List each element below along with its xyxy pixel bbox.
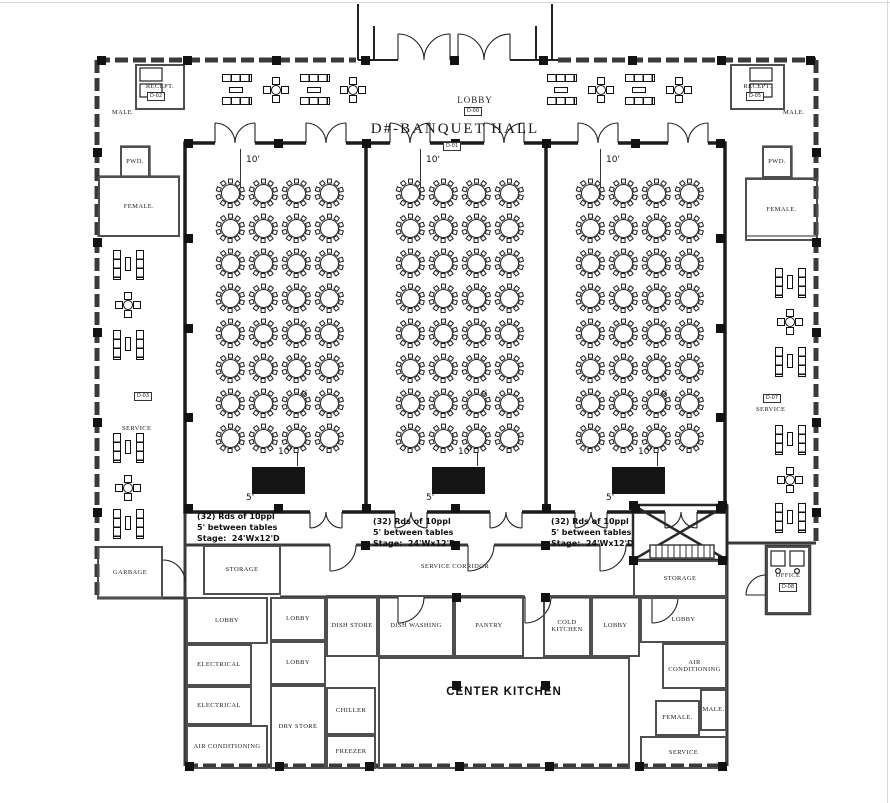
chair (518, 334, 524, 340)
chair (429, 186, 435, 192)
chair (267, 409, 273, 415)
structural-column (275, 762, 284, 771)
chair (485, 264, 491, 270)
chair (272, 186, 278, 192)
chair (513, 269, 519, 275)
chair (609, 369, 615, 375)
structural-column (716, 139, 725, 148)
lounge-sofa-set (112, 248, 144, 282)
room-label: LOBBY (671, 616, 695, 624)
room-electrical: ELECTRICAL (186, 686, 252, 725)
chair (429, 396, 435, 402)
chair (414, 444, 420, 450)
chair (621, 273, 626, 278)
chair (495, 439, 501, 445)
chair (599, 361, 605, 367)
chair (462, 299, 468, 305)
chair (675, 404, 681, 410)
chair (642, 299, 648, 305)
chair (599, 256, 605, 262)
chair (419, 439, 425, 445)
chair (675, 256, 681, 262)
chair (333, 199, 339, 205)
chair (576, 221, 582, 227)
chair (485, 431, 491, 437)
chair (294, 424, 299, 429)
lounge-sofa-set (623, 74, 657, 106)
chair (239, 439, 245, 445)
chair (632, 431, 638, 437)
chair (249, 431, 255, 437)
chair (576, 334, 582, 340)
chair (429, 194, 435, 200)
chair (305, 361, 311, 367)
chair (474, 249, 479, 254)
chair (665, 256, 671, 262)
chair (228, 214, 233, 219)
chair (408, 319, 413, 324)
round-table (395, 213, 425, 243)
round-table (314, 178, 344, 208)
chair (228, 343, 233, 348)
chair (249, 404, 255, 410)
room-lobby: LOBBY (270, 641, 326, 685)
chair (228, 319, 233, 324)
chair (480, 339, 486, 345)
chair (305, 256, 311, 262)
chair (272, 396, 278, 402)
chair (305, 186, 311, 192)
chair (396, 431, 402, 437)
chair (513, 374, 519, 380)
chair (518, 396, 524, 402)
chair (396, 229, 402, 235)
chair (228, 249, 233, 254)
chair (621, 343, 626, 348)
coffee-table (126, 257, 132, 271)
chair (452, 221, 458, 227)
chair (216, 256, 222, 262)
chair (675, 77, 683, 85)
chair (474, 389, 479, 394)
chair (693, 269, 699, 275)
round-table (248, 248, 278, 278)
structural-column (272, 56, 281, 65)
round-table (674, 423, 704, 453)
lounge-table-four-chairs (666, 77, 692, 103)
chair (338, 369, 344, 375)
chair (684, 86, 692, 94)
chair (474, 179, 479, 184)
round-table (641, 178, 671, 208)
chair (429, 256, 435, 262)
chair (474, 319, 479, 324)
chair (234, 339, 240, 345)
room-label: MALE. (783, 109, 805, 117)
dimension-label: 10' (638, 447, 652, 457)
round-table (314, 283, 344, 313)
chair (249, 194, 255, 200)
chair (216, 299, 222, 305)
chair (300, 339, 306, 345)
chair (518, 221, 524, 227)
chair (216, 186, 222, 192)
chair (333, 374, 339, 380)
chair (687, 179, 692, 184)
chair (414, 374, 420, 380)
chair (621, 354, 626, 359)
chair (441, 179, 446, 184)
structural-column (628, 56, 637, 65)
round-table (281, 353, 311, 383)
chair (518, 264, 524, 270)
chair (396, 221, 402, 227)
chair (408, 448, 413, 453)
chair (282, 264, 288, 270)
round-table (248, 318, 278, 348)
chair (327, 238, 332, 243)
chair (419, 334, 425, 340)
chair (327, 203, 332, 208)
lounge-sofa-set (774, 501, 806, 535)
room-center-kitchen: CENTER KITCHEN (378, 657, 630, 769)
chair (485, 361, 491, 367)
dimension-label: 10' (246, 155, 260, 165)
chair (249, 221, 255, 227)
chair (452, 431, 458, 437)
structural-column (452, 593, 461, 602)
sofa (113, 250, 121, 280)
chair (507, 308, 512, 313)
chair (698, 361, 704, 367)
chair (462, 256, 468, 262)
chair (462, 396, 468, 402)
chair (627, 339, 633, 345)
chair (627, 269, 633, 275)
chair (642, 264, 648, 270)
chair (419, 221, 425, 227)
chair (452, 439, 458, 445)
chair (249, 361, 255, 367)
round-table (395, 423, 425, 453)
chair (609, 256, 615, 262)
chair (267, 199, 273, 205)
chair (305, 194, 311, 200)
room-male-: MALE. (100, 106, 146, 119)
chair (239, 396, 245, 402)
chair (419, 404, 425, 410)
chair (597, 77, 605, 85)
chair (474, 203, 479, 208)
chair (414, 234, 420, 240)
chair (795, 318, 803, 326)
round-table (281, 178, 311, 208)
chair (305, 299, 311, 305)
chair (698, 256, 704, 262)
round-table (395, 178, 425, 208)
chair (239, 431, 245, 437)
round-table (281, 318, 311, 348)
structural-column (361, 56, 370, 65)
round-table (575, 388, 605, 418)
round-table (461, 178, 491, 208)
round-table (281, 283, 311, 313)
chair (327, 249, 332, 254)
chair (632, 439, 638, 445)
chair (462, 221, 468, 227)
chair (698, 264, 704, 270)
chair (396, 186, 402, 192)
chair (300, 304, 306, 310)
chair (665, 194, 671, 200)
room-service-corridor: SERVICE CORRIDOR (388, 560, 522, 574)
chair (228, 308, 233, 313)
lounge-table-four-chairs (263, 77, 289, 103)
chair (429, 326, 435, 332)
chair (507, 319, 512, 324)
chair (315, 291, 321, 297)
chair (249, 229, 255, 235)
stage-platform (612, 467, 665, 494)
chair (687, 203, 692, 208)
coffee-table (632, 87, 646, 93)
round-table (248, 388, 278, 418)
table-top (123, 483, 133, 493)
chair (576, 194, 582, 200)
chair (115, 301, 123, 309)
chair (665, 361, 671, 367)
round-table (674, 213, 704, 243)
chair (267, 339, 273, 345)
room-label: FREEZER (336, 748, 367, 756)
coffee-table (788, 354, 794, 368)
round-table (461, 248, 491, 278)
chair (228, 378, 233, 383)
dimension-label: 10' (606, 155, 620, 165)
round-table (215, 388, 245, 418)
structural-column (812, 418, 821, 427)
room-label: SERVICE (669, 749, 698, 757)
chair (609, 404, 615, 410)
room-pwd-: PWD. (762, 146, 792, 178)
chair (408, 389, 413, 394)
chair (507, 378, 512, 383)
chair (632, 369, 638, 375)
chair (654, 424, 659, 429)
sofa (300, 74, 330, 82)
chair (338, 361, 344, 367)
chair (305, 404, 311, 410)
room-label: GARBAGE (113, 569, 147, 577)
chair (594, 339, 600, 345)
chair (261, 238, 266, 243)
chair (239, 194, 245, 200)
chair (441, 308, 446, 313)
chair (609, 229, 615, 235)
structural-column (184, 139, 193, 148)
chair (621, 238, 626, 243)
chair (474, 273, 479, 278)
chair (414, 269, 420, 275)
chair (675, 361, 681, 367)
chair (654, 203, 659, 208)
chair (588, 448, 593, 453)
chair (315, 326, 321, 332)
chair (480, 409, 486, 415)
chair (654, 284, 659, 289)
chair (282, 291, 288, 297)
chair (576, 361, 582, 367)
structural-column (718, 556, 727, 565)
chair (124, 493, 132, 501)
chair (294, 308, 299, 313)
round-table (248, 423, 278, 453)
chair (327, 354, 332, 359)
chair (642, 396, 648, 402)
chair (588, 308, 593, 313)
chair (239, 264, 245, 270)
chair (642, 221, 648, 227)
chair (597, 95, 605, 103)
round-table (494, 388, 524, 418)
room-label: COLD KITCHEN (545, 619, 589, 634)
chair (654, 413, 659, 418)
chair (609, 264, 615, 270)
chair (452, 194, 458, 200)
round-table (428, 283, 458, 313)
chair (441, 354, 446, 359)
round-table (494, 283, 524, 313)
service-tag: D-07 (763, 394, 781, 403)
room-label: SERVICE CORRIDOR (421, 563, 489, 571)
chair (795, 476, 803, 484)
chair (305, 221, 311, 227)
round-table (314, 318, 344, 348)
chair (234, 374, 240, 380)
chair (599, 439, 605, 445)
chair (452, 369, 458, 375)
chair (234, 199, 240, 205)
room-male-: MALE. (700, 689, 727, 731)
dimension-label: 5' (606, 493, 614, 503)
structural-column (812, 238, 821, 247)
chair (239, 229, 245, 235)
room-label: PWD. (126, 158, 144, 166)
room-label: STORAGE (226, 566, 259, 574)
coffee-table (788, 275, 794, 289)
room-recept-: RECEPT. (135, 64, 185, 110)
room-lobby: LOBBY (186, 597, 268, 644)
round-table (215, 353, 245, 383)
structural-column (812, 148, 821, 157)
chair (485, 186, 491, 192)
chair (474, 343, 479, 348)
chair (216, 361, 222, 367)
chair (414, 339, 420, 345)
structural-column (718, 762, 727, 771)
round-table (215, 423, 245, 453)
dimension-label: 10' (458, 447, 472, 457)
chair (518, 361, 524, 367)
chair (474, 214, 479, 219)
chair (665, 439, 671, 445)
chair (576, 291, 582, 297)
structural-column (361, 541, 370, 550)
chair (698, 431, 704, 437)
chair (396, 256, 402, 262)
round-table (428, 388, 458, 418)
round-table (494, 178, 524, 208)
room-dry-store: DRY STORE (270, 685, 326, 769)
chair (441, 343, 446, 348)
lounge-sofa-set (112, 507, 144, 541)
chair (576, 396, 582, 402)
chair (786, 309, 794, 317)
chair (272, 439, 278, 445)
chair (462, 334, 468, 340)
chair (495, 299, 501, 305)
chair (327, 343, 332, 348)
chair (261, 319, 266, 324)
room-male-: MALE. (770, 106, 818, 119)
chair (396, 334, 402, 340)
structural-column (455, 762, 464, 771)
chair (305, 229, 311, 235)
chair (609, 194, 615, 200)
chair (267, 234, 273, 240)
chair (599, 194, 605, 200)
chair (495, 326, 501, 332)
lounge-sofa-set (298, 74, 332, 106)
chair (588, 249, 593, 254)
chair (133, 484, 141, 492)
chair (249, 186, 255, 192)
round-table (494, 318, 524, 348)
chair (396, 361, 402, 367)
chair (474, 354, 479, 359)
chair (282, 326, 288, 332)
chair (239, 369, 245, 375)
chair (495, 361, 501, 367)
chair (675, 291, 681, 297)
round-table (248, 353, 278, 383)
chair (396, 369, 402, 375)
chair (261, 249, 266, 254)
chair (429, 369, 435, 375)
chair (452, 186, 458, 192)
chair (609, 299, 615, 305)
structural-column (542, 139, 551, 148)
chair (588, 343, 593, 348)
chair (507, 448, 512, 453)
room-label: DISH WASHING (390, 622, 441, 630)
chair (239, 256, 245, 262)
chair (642, 431, 648, 437)
chair (609, 221, 615, 227)
room-tag: D-02 (147, 92, 165, 101)
room-label: STORAGE (664, 575, 697, 583)
chair (396, 264, 402, 270)
chair (606, 86, 614, 94)
chair (599, 221, 605, 227)
chair (588, 378, 593, 383)
chair (588, 86, 596, 94)
chair (507, 424, 512, 429)
lounge-sofa-set (774, 423, 806, 457)
chair (327, 319, 332, 324)
chair (474, 284, 479, 289)
chair (272, 95, 280, 103)
